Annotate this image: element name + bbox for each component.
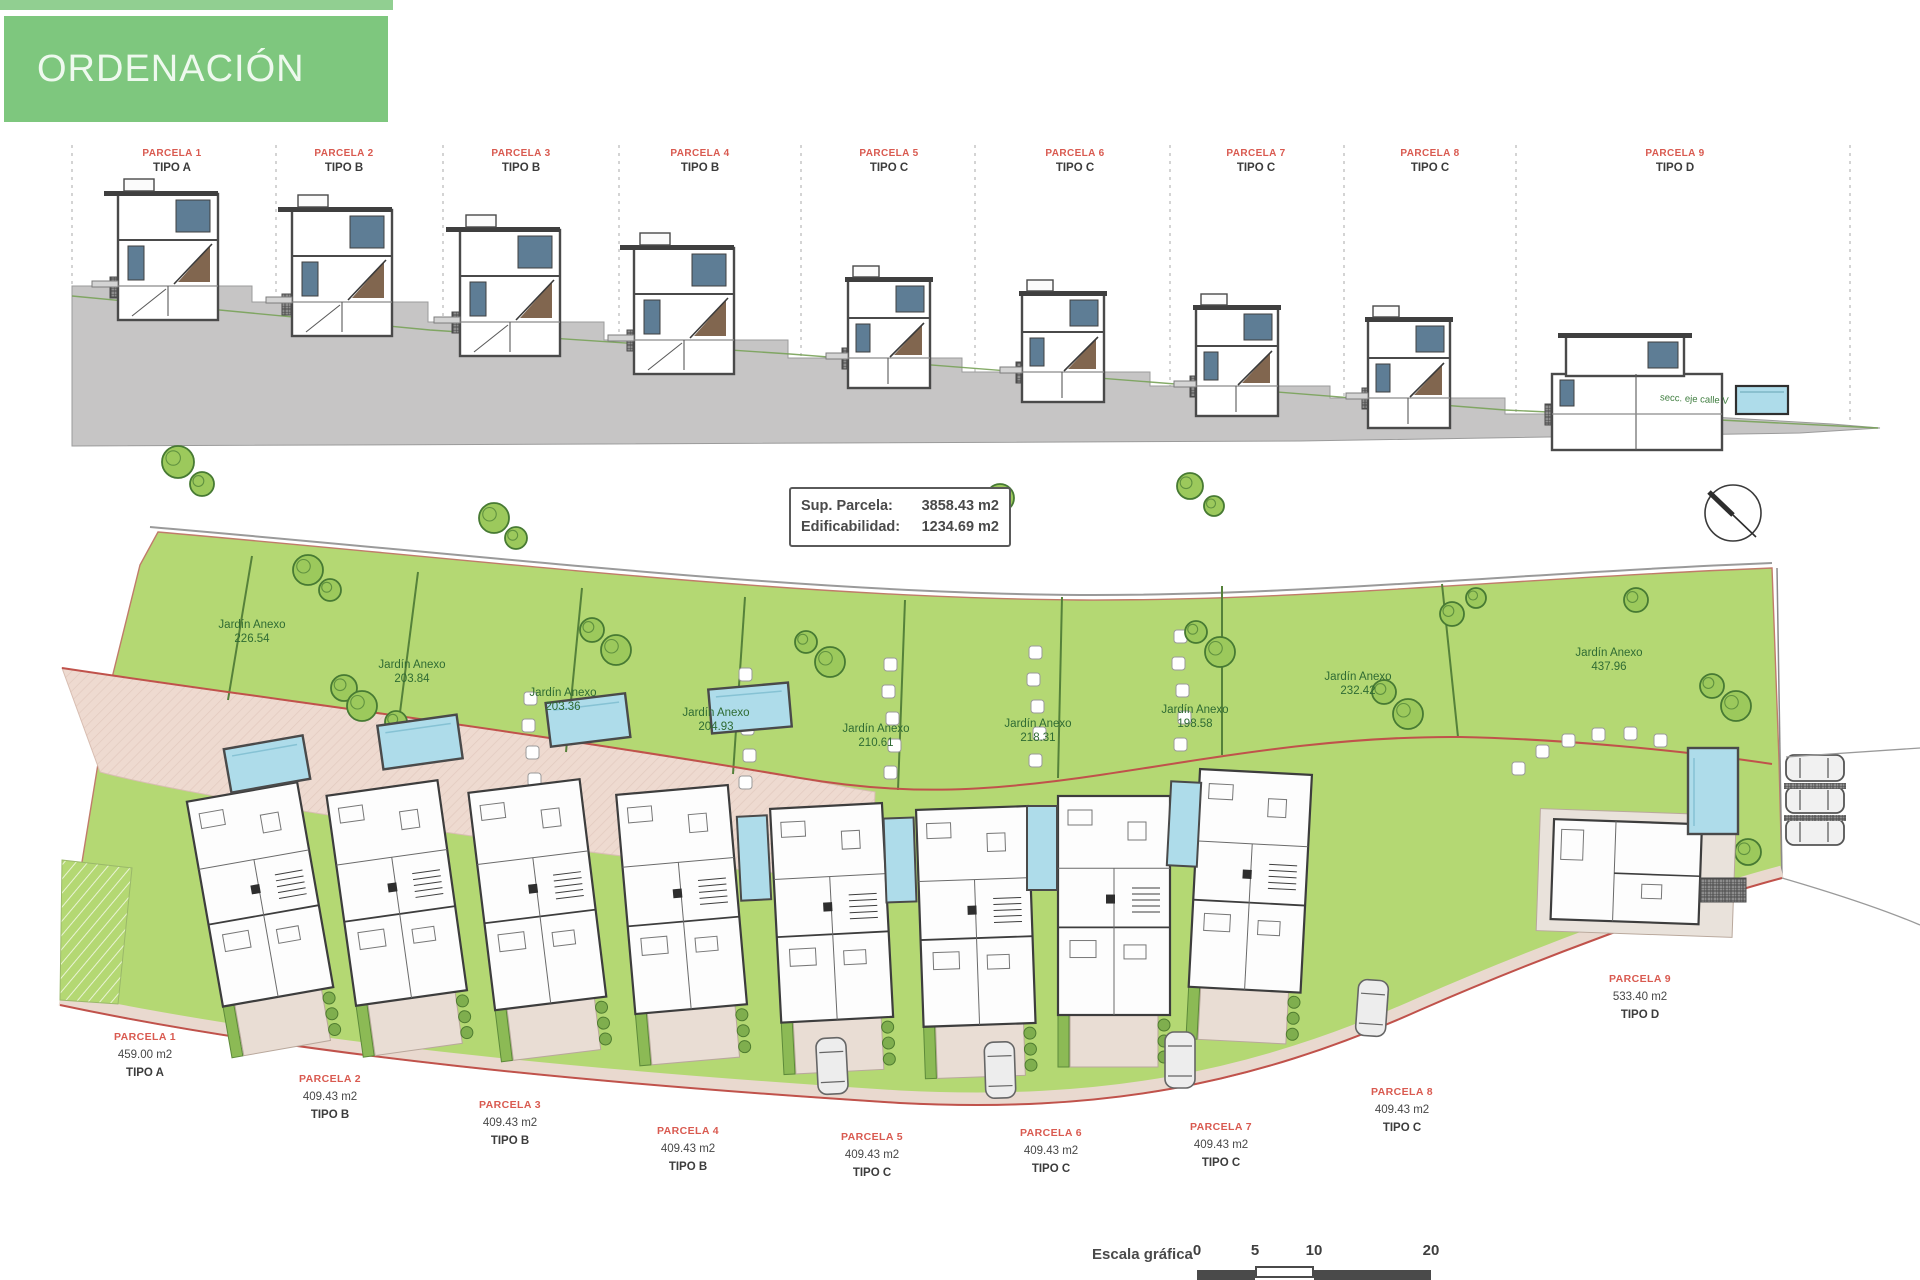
plot-area: 409.43 m2	[841, 1146, 903, 1164]
tree	[479, 503, 509, 533]
plan-house-4	[616, 785, 751, 1066]
garden-label-text: Jardín Anexo	[1161, 703, 1228, 717]
plot-name: PARCELA 7	[1190, 1118, 1252, 1136]
plot-area: 409.43 m2	[299, 1088, 361, 1106]
paver	[1592, 728, 1605, 741]
paver	[743, 749, 756, 762]
tree	[1440, 602, 1464, 626]
pool	[1167, 781, 1201, 866]
paver	[1174, 738, 1187, 751]
garden-label-6: Jardín Anexo 218.31	[1004, 717, 1071, 745]
garden-label-7: Jardín Anexo 198.58	[1161, 703, 1228, 731]
pool	[1688, 748, 1738, 834]
stall-divider	[1784, 815, 1846, 821]
car	[1165, 1032, 1195, 1088]
tree	[1205, 637, 1235, 667]
garden-label-1: Jardín Anexo 226.54	[218, 618, 285, 646]
tree	[601, 635, 631, 665]
tree	[1735, 839, 1761, 865]
plot-label-1: PARCELA 1 459.00 m2 TIPO A	[114, 1028, 176, 1082]
garden-area-value: 203.84	[378, 672, 445, 686]
sup-parcela-label: Sup. Parcela:	[801, 496, 893, 517]
ordenacion-sheet: ORDENACIÓN PARCELA 1 TIPO A PARCELA 2 TI…	[0, 0, 1920, 1280]
parcel-tipo: TIPO A	[142, 161, 201, 176]
pool	[377, 715, 462, 770]
plot-label-2: PARCELA 2 409.43 m2 TIPO B	[299, 1070, 361, 1124]
scale-segment-dark	[1197, 1270, 1255, 1280]
scale-segment-open	[1255, 1266, 1314, 1278]
plot-label-5: PARCELA 5 409.43 m2 TIPO C	[841, 1128, 903, 1182]
garden-label-text: Jardín Anexo	[1324, 670, 1391, 684]
elevation-parcel-header-2: PARCELA 2 TIPO B	[314, 146, 373, 176]
edificabilidad-row: Edificabilidad: 1234.69 m2	[801, 517, 999, 538]
plot-name: PARCELA 3	[479, 1096, 541, 1114]
pool	[884, 818, 917, 903]
title-banner: ORDENACIÓN	[4, 16, 388, 122]
paver	[1654, 734, 1667, 747]
road-edge	[1782, 878, 1920, 925]
tree	[1204, 496, 1224, 516]
plot-name: PARCELA 8	[1371, 1083, 1433, 1101]
plan-house-6	[916, 806, 1037, 1079]
elevation-parcel-header-6: PARCELA 6 TIPO C	[1045, 146, 1104, 176]
plot-area: 409.43 m2	[1020, 1142, 1082, 1160]
paver	[1027, 673, 1040, 686]
plot-label-6: PARCELA 6 409.43 m2 TIPO C	[1020, 1124, 1082, 1178]
elevation-parcel-header-5: PARCELA 5 TIPO C	[859, 146, 918, 176]
car	[1355, 979, 1389, 1037]
plot-tipo: TIPO B	[479, 1132, 541, 1150]
garden-label-8: Jardín Anexo 232.42	[1324, 670, 1391, 698]
paver	[882, 685, 895, 698]
plan-house-7	[1058, 796, 1170, 1067]
steps-hatch	[1700, 878, 1746, 902]
tree	[1700, 674, 1724, 698]
tree	[1393, 699, 1423, 729]
tree	[580, 618, 604, 642]
tree	[815, 647, 845, 677]
garden-label-text: Jardín Anexo	[1004, 717, 1071, 731]
parked-car	[1786, 787, 1844, 813]
tree	[293, 555, 323, 585]
elevation-parcel-header-7: PARCELA 7 TIPO C	[1226, 146, 1285, 176]
plot-tipo: TIPO C	[841, 1164, 903, 1182]
site-plan-drawing	[0, 0, 1920, 1280]
paver	[1536, 745, 1549, 758]
plot-label-7: PARCELA 7 409.43 m2 TIPO C	[1190, 1118, 1252, 1172]
parcel-summary-box: Sup. Parcela: 3858.43 m2 Edificabilidad:…	[789, 487, 1011, 547]
scale-tick-3: 20	[1423, 1242, 1440, 1259]
page-title: ORDENACIÓN	[4, 48, 305, 91]
garden-area-value: 437.96	[1575, 660, 1642, 674]
tree	[1466, 588, 1486, 608]
section-pool	[1736, 386, 1788, 414]
elevation-parcel-header-4: PARCELA 4 TIPO B	[670, 146, 729, 176]
plot-area: 409.43 m2	[1371, 1101, 1433, 1119]
plot-area: 409.43 m2	[657, 1140, 719, 1158]
garden-label-4: Jardín Anexo 204.93	[682, 706, 749, 734]
garden-label-text: Jardín Anexo	[218, 618, 285, 632]
parcel-name: PARCELA 8	[1400, 146, 1459, 161]
scale-tick-1: 5	[1251, 1242, 1259, 1259]
plot-name: PARCELA 5	[841, 1128, 903, 1146]
garden-area-value: 203.36	[529, 700, 596, 714]
tree	[1721, 691, 1751, 721]
elevation-section	[72, 145, 1880, 450]
elevation-parcel-header-1: PARCELA 1 TIPO A	[142, 146, 201, 176]
paver	[1562, 734, 1575, 747]
parcel-tipo: TIPO B	[670, 161, 729, 176]
plot-area: 533.40 m2	[1609, 988, 1671, 1006]
parcel-name: PARCELA 7	[1226, 146, 1285, 161]
parcel-name: PARCELA 9	[1645, 146, 1704, 161]
garden-label-text: Jardín Anexo	[842, 722, 909, 736]
paver	[884, 766, 897, 779]
plot-label-4: PARCELA 4 409.43 m2 TIPO B	[657, 1122, 719, 1176]
pool	[1027, 806, 1057, 890]
garden-label-5: Jardín Anexo 210.61	[842, 722, 909, 750]
plot-name: PARCELA 9	[1609, 970, 1671, 988]
road-edge	[1786, 748, 1920, 757]
paver	[1172, 657, 1185, 670]
garden-label-2: Jardín Anexo 203.84	[378, 658, 445, 686]
tree	[190, 472, 214, 496]
garden-label-9: Jardín Anexo 437.96	[1575, 646, 1642, 674]
elevation-parcel-header-9: PARCELA 9 TIPO D	[1645, 146, 1704, 176]
scale-bar-label: Escala gráfica	[1092, 1246, 1193, 1263]
parcel-tipo: TIPO C	[1045, 161, 1104, 176]
garden-label-text: Jardín Anexo	[378, 658, 445, 672]
tree	[505, 527, 527, 549]
tree	[1624, 588, 1648, 612]
paver	[1512, 762, 1525, 775]
plan-house-5	[770, 803, 896, 1074]
scale-segment-dark	[1314, 1270, 1431, 1280]
plot-name: PARCELA 1	[114, 1028, 176, 1046]
car	[984, 1041, 1016, 1098]
scale-tick-0: 0	[1193, 1242, 1201, 1259]
parcel-tipo: TIPO C	[1226, 161, 1285, 176]
plot-tipo: TIPO A	[114, 1064, 176, 1082]
sup-parcela-value: 3858.43 m2	[922, 496, 999, 517]
garden-area-value: 198.58	[1161, 717, 1228, 731]
garden-label-text: Jardín Anexo	[682, 706, 749, 720]
tree	[1185, 621, 1207, 643]
scale-tick-2: 10	[1306, 1242, 1323, 1259]
tree	[319, 579, 341, 601]
plot-area: 409.43 m2	[479, 1114, 541, 1132]
garden-area-value: 232.42	[1324, 684, 1391, 698]
stall-divider	[1784, 783, 1846, 789]
paver	[1624, 727, 1637, 740]
plot-label-3: PARCELA 3 409.43 m2 TIPO B	[479, 1096, 541, 1150]
garden-label-text: Jardín Anexo	[529, 686, 596, 700]
edificabilidad-label: Edificabilidad:	[801, 517, 900, 538]
paver	[739, 668, 752, 681]
paver	[1029, 646, 1042, 659]
plan-house-8	[1186, 769, 1312, 1044]
garden-label-3: Jardín Anexo 203.36	[529, 686, 596, 714]
plot-area: 459.00 m2	[114, 1046, 176, 1064]
elevation-parcel-header-8: PARCELA 8 TIPO C	[1400, 146, 1459, 176]
garden-area-value: 210.61	[842, 736, 909, 750]
car	[816, 1037, 849, 1094]
tree	[1177, 473, 1203, 499]
paver	[1176, 684, 1189, 697]
paver	[1031, 700, 1044, 713]
paver	[739, 776, 752, 789]
paver	[526, 746, 539, 759]
plot-name: PARCELA 6	[1020, 1124, 1082, 1142]
paver	[1029, 754, 1042, 767]
parcel-name: PARCELA 1	[142, 146, 201, 161]
parcel-name: PARCELA 3	[491, 146, 550, 161]
tree	[162, 446, 194, 478]
plot-label-9: PARCELA 9 533.40 m2 TIPO D	[1609, 970, 1671, 1024]
garden-area-value: 218.31	[1004, 731, 1071, 745]
garden-label-text: Jardín Anexo	[1575, 646, 1642, 660]
parcel-name: PARCELA 4	[670, 146, 729, 161]
plot-area: 409.43 m2	[1190, 1136, 1252, 1154]
plot-tipo: TIPO B	[299, 1106, 361, 1124]
plot-label-8: PARCELA 8 409.43 m2 TIPO C	[1371, 1083, 1433, 1137]
sup-parcela-row: Sup. Parcela: 3858.43 m2	[801, 496, 999, 517]
north-arrow-icon	[1705, 485, 1761, 541]
plot-tipo: TIPO D	[1609, 1006, 1671, 1024]
parcel-name: PARCELA 6	[1045, 146, 1104, 161]
parcel-tipo: TIPO C	[859, 161, 918, 176]
garden-area-value: 204.93	[682, 720, 749, 734]
paver	[884, 658, 897, 671]
plot-name: PARCELA 4	[657, 1122, 719, 1140]
parcel-tipo: TIPO B	[314, 161, 373, 176]
plot-tipo: TIPO C	[1020, 1160, 1082, 1178]
paver	[522, 719, 535, 732]
parcel-name: PARCELA 5	[859, 146, 918, 161]
top-accent-strip	[0, 0, 393, 10]
parked-car	[1786, 819, 1844, 845]
parcel-tipo: TIPO C	[1400, 161, 1459, 176]
parked-car	[1786, 755, 1844, 781]
parcel-name: PARCELA 2	[314, 146, 373, 161]
parcel-tipo: TIPO D	[1645, 161, 1704, 176]
tree	[795, 631, 817, 653]
plot-tipo: TIPO C	[1190, 1154, 1252, 1172]
pool	[737, 815, 771, 900]
garden-area-value: 226.54	[218, 632, 285, 646]
plot-tipo: TIPO B	[657, 1158, 719, 1176]
parcel-tipo: TIPO B	[491, 161, 550, 176]
plot-name: PARCELA 2	[299, 1070, 361, 1088]
tree	[347, 691, 377, 721]
plot-tipo: TIPO C	[1371, 1119, 1433, 1137]
edificabilidad-value: 1234.69 m2	[922, 517, 999, 538]
elevation-parcel-header-3: PARCELA 3 TIPO B	[491, 146, 550, 176]
